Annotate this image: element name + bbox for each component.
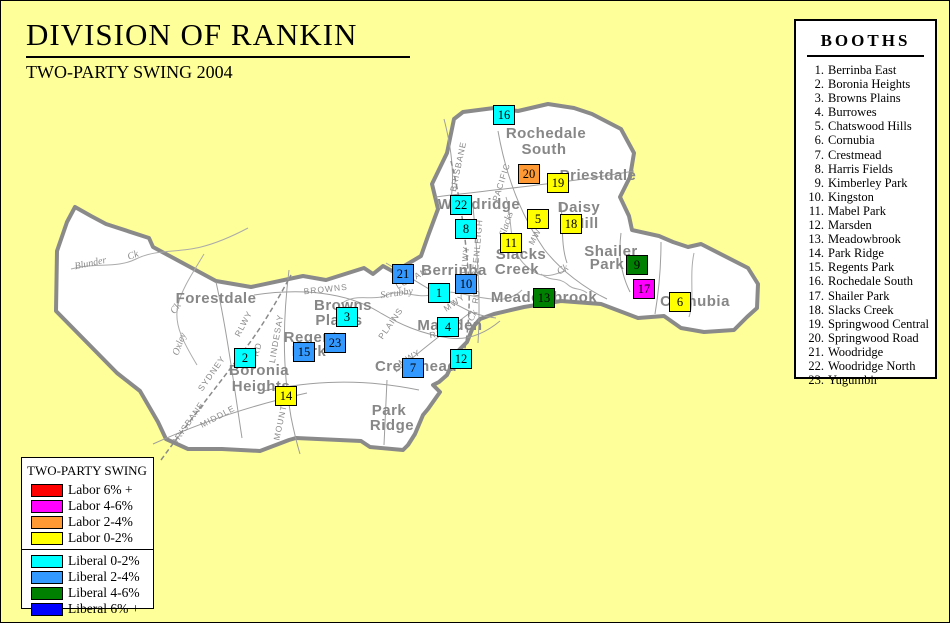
map-page: DIVISION OF RANKIN TWO-PARTY SWING 2004 xyxy=(0,0,950,623)
legend-swatch xyxy=(31,587,63,600)
booth-list-name: Rochedale South xyxy=(828,274,913,288)
booth-list-item: 3.Browns Plains xyxy=(796,91,935,105)
booth-list-number: 21. xyxy=(796,345,824,359)
booth-list-number: 9. xyxy=(796,176,824,190)
legend-swatch xyxy=(31,603,63,616)
booth-list-number: 17. xyxy=(796,289,824,303)
booth-list-name: Shailer Park xyxy=(828,289,889,303)
booths-panel-title: BOOTHS xyxy=(796,31,935,51)
booths-panel: BOOTHS 1.Berrinba East2.Boronia Heights3… xyxy=(794,19,937,379)
booth-list-item: 20.Springwood Road xyxy=(796,331,935,345)
booth-marker-8: 8 xyxy=(455,219,477,239)
booth-marker-7: 7 xyxy=(402,358,424,378)
legend-label: Liberal 2-4% xyxy=(68,569,140,585)
legend-swatch xyxy=(31,532,63,545)
booth-marker-22: 22 xyxy=(450,195,472,215)
booth-list-name: Mabel Park xyxy=(828,204,886,218)
booth-marker-15: 15 xyxy=(293,342,315,362)
booth-list-name: Yugumbir xyxy=(828,373,878,387)
booth-list-number: 14. xyxy=(796,246,824,260)
booth-list-item: 18.Slacks Creek xyxy=(796,303,935,317)
booth-list-number: 11. xyxy=(796,204,824,218)
booth-marker-16: 16 xyxy=(493,105,515,125)
legend-label: Labor 2-4% xyxy=(68,514,133,530)
booth-list-name: Crestmead xyxy=(828,148,881,162)
booth-list-number: 7. xyxy=(796,148,824,162)
booth-list-number: 22. xyxy=(796,359,824,373)
booth-list-name: Browns Plains xyxy=(828,91,901,105)
booth-list-item: 13.Meadowbrook xyxy=(796,232,935,246)
booth-marker-23: 23 xyxy=(324,333,346,353)
legend-row: Liberal 4-6% xyxy=(31,585,153,601)
booth-list-name: Woodridge xyxy=(828,345,883,359)
booth-marker-5: 5 xyxy=(527,209,549,229)
legend-row: Labor 4-6% xyxy=(31,498,153,514)
booth-marker-12: 12 xyxy=(450,349,472,369)
booth-list-item: 1.Berrinba East xyxy=(796,63,935,77)
booth-list-number: 4. xyxy=(796,105,824,119)
booth-list-number: 18. xyxy=(796,303,824,317)
booth-marker-10: 10 xyxy=(455,274,477,294)
booth-marker-17: 17 xyxy=(633,279,655,299)
legend-liberal-group: Liberal 0-2%Liberal 2-4%Liberal 4-6%Libe… xyxy=(22,553,153,617)
booth-marker-18: 18 xyxy=(560,214,582,234)
booth-list-name: Harris Fields xyxy=(828,162,893,176)
legend-labor-group: Labor 6% +Labor 4-6%Labor 2-4%Labor 0-2% xyxy=(22,482,153,546)
booth-list-number: 13. xyxy=(796,232,824,246)
booths-list: 1.Berrinba East2.Boronia Heights3.Browns… xyxy=(796,63,935,387)
booth-list-name: Kingston xyxy=(828,190,874,204)
booth-list-item: 14.Park Ridge xyxy=(796,246,935,260)
legend-row: Liberal 6% + xyxy=(31,601,153,617)
legend-swatch xyxy=(31,484,63,497)
booth-list-number: 1. xyxy=(796,63,824,77)
booths-title-rule xyxy=(807,55,924,57)
booth-list-name: Cornubia xyxy=(828,133,875,147)
legend-swatch xyxy=(31,555,63,568)
booth-list-name: Chatswood Hills xyxy=(828,119,912,133)
booth-list-name: Berrinba East xyxy=(828,63,896,77)
booth-marker-2: 2 xyxy=(234,348,256,368)
booth-marker-20: 20 xyxy=(518,164,540,184)
legend-swatch xyxy=(31,500,63,513)
booth-list-item: 4.Burrowes xyxy=(796,105,935,119)
legend-row: Liberal 0-2% xyxy=(31,553,153,569)
booth-list-name: Park Ridge xyxy=(828,246,884,260)
booth-marker-6: 6 xyxy=(669,292,691,312)
legend-label: Liberal 4-6% xyxy=(68,585,140,601)
booth-list-number: 12. xyxy=(796,218,824,232)
booth-list-item: 17.Shailer Park xyxy=(796,289,935,303)
booth-list-number: 10. xyxy=(796,190,824,204)
booth-list-name: Slacks Creek xyxy=(828,303,894,317)
swing-legend: TWO-PARTY SWING Labor 6% +Labor 4-6%Labo… xyxy=(21,457,154,609)
booth-list-name: Springwood Road xyxy=(828,331,919,345)
booth-list-number: 23. xyxy=(796,373,824,387)
booth-list-number: 15. xyxy=(796,260,824,274)
legend-label: Labor 4-6% xyxy=(68,498,133,514)
legend-title: TWO-PARTY SWING xyxy=(27,463,153,479)
booth-marker-3: 3 xyxy=(336,307,358,327)
booth-list-item: 6.Cornubia xyxy=(796,133,935,147)
booth-list-item: 16.Rochedale South xyxy=(796,274,935,288)
booth-list-item: 5.Chatswood Hills xyxy=(796,119,935,133)
booth-list-name: Woodridge North xyxy=(828,359,916,373)
booth-list-item: 10.Kingston xyxy=(796,190,935,204)
legend-label: Liberal 6% + xyxy=(68,601,139,617)
booth-marker-14: 14 xyxy=(275,386,297,406)
booth-list-number: 5. xyxy=(796,119,824,133)
booth-list-number: 6. xyxy=(796,133,824,147)
booth-list-item: 8.Harris Fields xyxy=(796,162,935,176)
legend-swatch xyxy=(31,571,63,584)
booth-list-item: 7.Crestmead xyxy=(796,148,935,162)
booth-list-name: Regents Park xyxy=(828,260,894,274)
legend-swatch xyxy=(31,516,63,529)
booth-list-number: 2. xyxy=(796,77,824,91)
booth-list-name: Marsden xyxy=(828,218,872,232)
booth-list-item: 23.Yugumbir xyxy=(796,373,935,387)
legend-row: Labor 0-2% xyxy=(31,530,153,546)
booth-list-number: 16. xyxy=(796,274,824,288)
legend-row: Labor 6% + xyxy=(31,482,153,498)
booth-list-number: 8. xyxy=(796,162,824,176)
booth-marker-9: 9 xyxy=(626,255,648,275)
booth-list-number: 3. xyxy=(796,91,824,105)
booth-list-name: Springwood Central xyxy=(828,317,929,331)
booth-marker-4: 4 xyxy=(437,317,459,337)
legend-row: Labor 2-4% xyxy=(31,514,153,530)
booth-list-item: 19.Springwood Central xyxy=(796,317,935,331)
booth-list-item: 22.Woodridge North xyxy=(796,359,935,373)
booth-marker-21: 21 xyxy=(392,264,414,284)
booth-marker-11: 11 xyxy=(500,233,522,253)
booth-list-name: Boronia Heights xyxy=(828,77,910,91)
booth-list-name: Burrowes xyxy=(828,105,877,119)
legend-label: Labor 6% + xyxy=(68,482,133,498)
legend-label: Liberal 0-2% xyxy=(68,553,140,569)
legend-divider xyxy=(22,549,153,550)
booth-marker-19: 19 xyxy=(547,173,569,193)
booth-list-item: 11.Mabel Park xyxy=(796,204,935,218)
booth-list-item: 21.Woodridge xyxy=(796,345,935,359)
booth-list-name: Meadowbrook xyxy=(828,232,901,246)
booth-list-number: 19. xyxy=(796,317,824,331)
legend-label: Labor 0-2% xyxy=(68,530,133,546)
booth-list-item: 12.Marsden xyxy=(796,218,935,232)
legend-row: Liberal 2-4% xyxy=(31,569,153,585)
booth-marker-1: 1 xyxy=(428,283,450,303)
booth-list-item: 15.Regents Park xyxy=(796,260,935,274)
booth-list-name: Kimberley Park xyxy=(828,176,908,190)
booth-marker-13: 13 xyxy=(533,288,555,308)
booth-list-item: 2.Boronia Heights xyxy=(796,77,935,91)
booth-list-number: 20. xyxy=(796,331,824,345)
booth-list-item: 9.Kimberley Park xyxy=(796,176,935,190)
